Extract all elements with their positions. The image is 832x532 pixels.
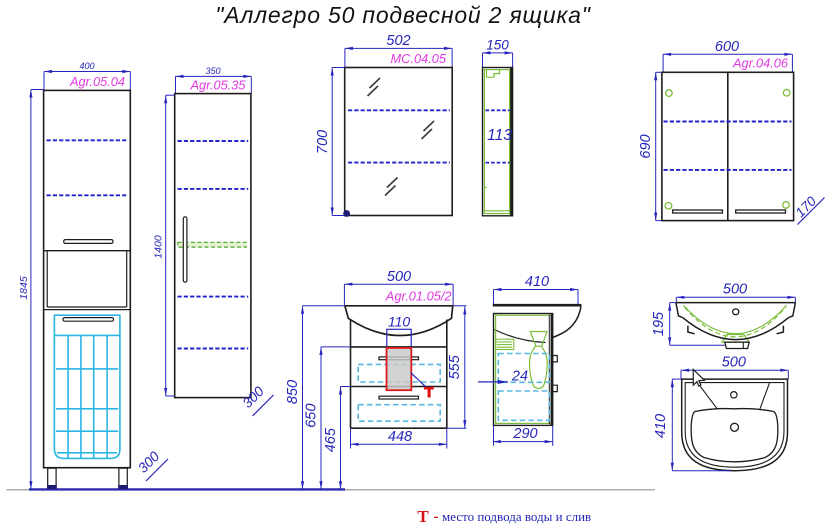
- svg-text:113: 113: [487, 127, 512, 144]
- svg-text:Т: Т: [417, 507, 429, 526]
- svg-text:350: 350: [205, 66, 220, 76]
- svg-text:500: 500: [722, 355, 746, 371]
- svg-text:600: 600: [715, 39, 739, 55]
- svg-text:Agr.05.35: Agr.05.35: [189, 78, 246, 93]
- svg-text:110: 110: [388, 314, 411, 330]
- svg-text:место подвода воды и слив: место подвода воды и слив: [442, 509, 591, 524]
- svg-text:700: 700: [315, 130, 331, 154]
- svg-text:1845: 1845: [18, 276, 30, 300]
- svg-text:555: 555: [447, 354, 463, 379]
- svg-text:300: 300: [239, 383, 267, 411]
- svg-text:448: 448: [388, 429, 412, 445]
- svg-text:850: 850: [285, 380, 301, 404]
- svg-text:150: 150: [486, 38, 509, 53]
- svg-text:290: 290: [512, 426, 537, 442]
- svg-text:1400: 1400: [153, 235, 165, 259]
- svg-text:690: 690: [638, 134, 654, 158]
- svg-text:500: 500: [723, 282, 747, 298]
- svg-text:24: 24: [511, 369, 528, 385]
- svg-text:410: 410: [653, 414, 669, 438]
- svg-text:Agr.04.06: Agr.04.06: [732, 56, 789, 71]
- svg-text:Agr.05.04: Agr.05.04: [69, 74, 125, 89]
- svg-text:300: 300: [135, 448, 163, 476]
- svg-text:Agr.01.05/2: Agr.01.05/2: [385, 289, 452, 304]
- svg-text:650: 650: [304, 404, 320, 428]
- svg-text:465: 465: [323, 427, 339, 452]
- svg-text:"Аллегро 50 подвесной 2 ящика": "Аллегро 50 подвесной 2 ящика": [215, 2, 592, 28]
- svg-text:400: 400: [79, 61, 94, 71]
- svg-text:410: 410: [525, 274, 549, 290]
- svg-text:-: -: [434, 509, 439, 525]
- svg-text:195: 195: [651, 311, 667, 336]
- svg-text:МС.04.05: МС.04.05: [391, 51, 447, 66]
- svg-text:500: 500: [387, 269, 411, 285]
- svg-text:502: 502: [386, 33, 410, 49]
